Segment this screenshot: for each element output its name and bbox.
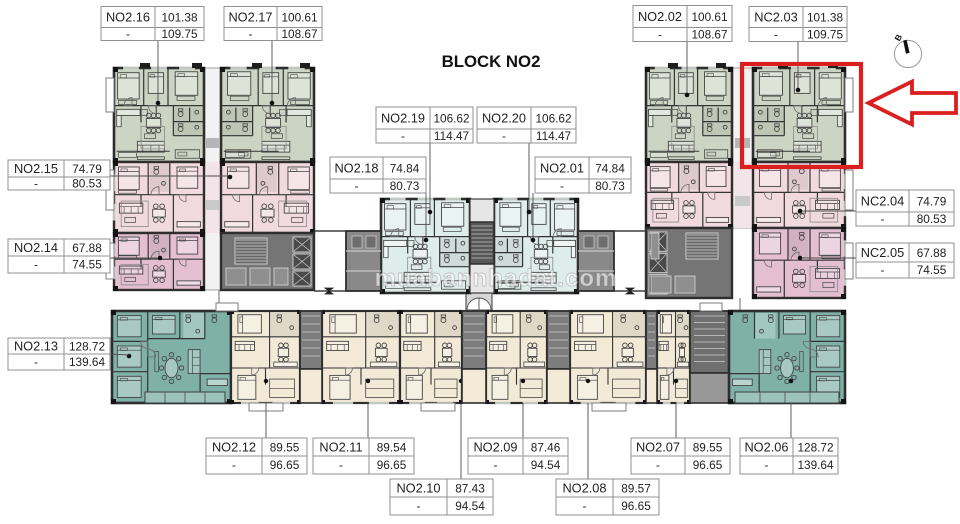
svg-text:128.72: 128.72 (69, 339, 105, 353)
svg-text:67.88: 67.88 (72, 241, 102, 255)
svg-text:NO2.01: NO2.01 (540, 160, 584, 175)
svg-text:89.57: 89.57 (621, 481, 651, 495)
svg-text:74.79: 74.79 (72, 162, 102, 176)
svg-text:NO2.07: NO2.07 (636, 439, 680, 454)
svg-text:96.65: 96.65 (621, 499, 651, 513)
svg-text:96.65: 96.65 (270, 458, 300, 472)
svg-text:-: - (881, 263, 885, 277)
svg-text:-: - (494, 458, 498, 472)
svg-text:114.47: 114.47 (434, 129, 469, 143)
svg-text:106.62: 106.62 (433, 111, 469, 125)
svg-text:-: - (126, 27, 130, 41)
svg-text:NO2.11: NO2.11 (319, 439, 362, 454)
svg-text:-: - (34, 177, 38, 191)
svg-text:87.43: 87.43 (455, 481, 485, 495)
svg-text:NO2.19: NO2.19 (381, 110, 425, 125)
svg-text:-: - (355, 179, 359, 193)
svg-text:109.75: 109.75 (807, 28, 844, 42)
svg-text:139.64: 139.64 (797, 458, 834, 472)
svg-text:94.54: 94.54 (455, 499, 485, 513)
svg-text:NO2.20: NO2.20 (482, 110, 526, 125)
svg-text:101.38: 101.38 (161, 10, 198, 24)
svg-text:-: - (765, 458, 769, 472)
svg-text:-: - (401, 129, 405, 143)
svg-text:-: - (774, 28, 778, 42)
svg-text:BLOCK NO2: BLOCK NO2 (442, 52, 541, 71)
svg-text:106.62: 106.62 (535, 111, 571, 125)
svg-text:101.38: 101.38 (807, 10, 844, 24)
svg-text:-: - (232, 458, 236, 472)
svg-text:114.47: 114.47 (536, 129, 571, 143)
svg-text:NO2.02: NO2.02 (638, 9, 682, 24)
svg-text:-: - (881, 212, 885, 226)
svg-text:100.61: 100.61 (691, 10, 727, 24)
svg-text:-: - (339, 458, 343, 472)
svg-text:-: - (656, 458, 660, 472)
svg-text:94.54: 94.54 (531, 458, 561, 472)
svg-text:NO2.12: NO2.12 (212, 439, 256, 454)
svg-text:96.65: 96.65 (693, 458, 723, 472)
svg-text:NC2.03: NC2.03 (754, 9, 797, 24)
svg-text:139.64: 139.64 (69, 355, 106, 369)
svg-text:-: - (34, 258, 38, 272)
svg-text:80.53: 80.53 (917, 212, 947, 226)
svg-text:128.72: 128.72 (797, 440, 833, 454)
svg-text:100.61: 100.61 (281, 10, 317, 24)
svg-text:NC2.05: NC2.05 (861, 245, 904, 260)
svg-text:NO2.08: NO2.08 (562, 480, 606, 495)
svg-text:NO2.16: NO2.16 (106, 9, 150, 24)
svg-text:-: - (249, 27, 253, 41)
svg-text:96.65: 96.65 (377, 458, 407, 472)
svg-text:NO2.09: NO2.09 (473, 439, 517, 454)
svg-text:NO2.17: NO2.17 (228, 9, 272, 24)
svg-text:108.67: 108.67 (691, 28, 727, 42)
svg-text:NC2.04: NC2.04 (861, 193, 904, 208)
svg-text:NO2.10: NO2.10 (396, 480, 440, 495)
svg-text:NO2.15: NO2.15 (14, 161, 58, 176)
svg-text:74.84: 74.84 (595, 161, 625, 175)
svg-text:109.75: 109.75 (161, 27, 198, 41)
svg-text:74.55: 74.55 (917, 263, 947, 277)
svg-text:80.73: 80.73 (595, 179, 625, 193)
svg-text:-: - (560, 179, 564, 193)
svg-text:NO2.18: NO2.18 (334, 160, 378, 175)
svg-text:87.46: 87.46 (531, 440, 561, 454)
svg-text:-: - (658, 28, 662, 42)
svg-text:NO2.13: NO2.13 (14, 338, 58, 353)
svg-text:-: - (417, 499, 421, 513)
svg-text:80.53: 80.53 (72, 177, 102, 191)
svg-text:89.55: 89.55 (693, 440, 723, 454)
svg-text:74.55: 74.55 (72, 258, 102, 272)
svg-text:89.55: 89.55 (270, 440, 300, 454)
svg-text:NO2.06: NO2.06 (744, 439, 788, 454)
svg-text:muabannhadat.com: muabannhadat.com (375, 265, 618, 292)
svg-text:108.67: 108.67 (281, 27, 317, 41)
svg-text:80.73: 80.73 (390, 179, 420, 193)
svg-text:-: - (34, 355, 38, 369)
svg-text:74.79: 74.79 (917, 194, 947, 208)
svg-text:89.54: 89.54 (377, 440, 407, 454)
svg-text:-: - (502, 129, 506, 143)
svg-text:67.88: 67.88 (917, 246, 947, 260)
svg-text:NO2.14: NO2.14 (14, 240, 58, 255)
svg-text:74.84: 74.84 (390, 161, 420, 175)
svg-text:-: - (583, 499, 587, 513)
